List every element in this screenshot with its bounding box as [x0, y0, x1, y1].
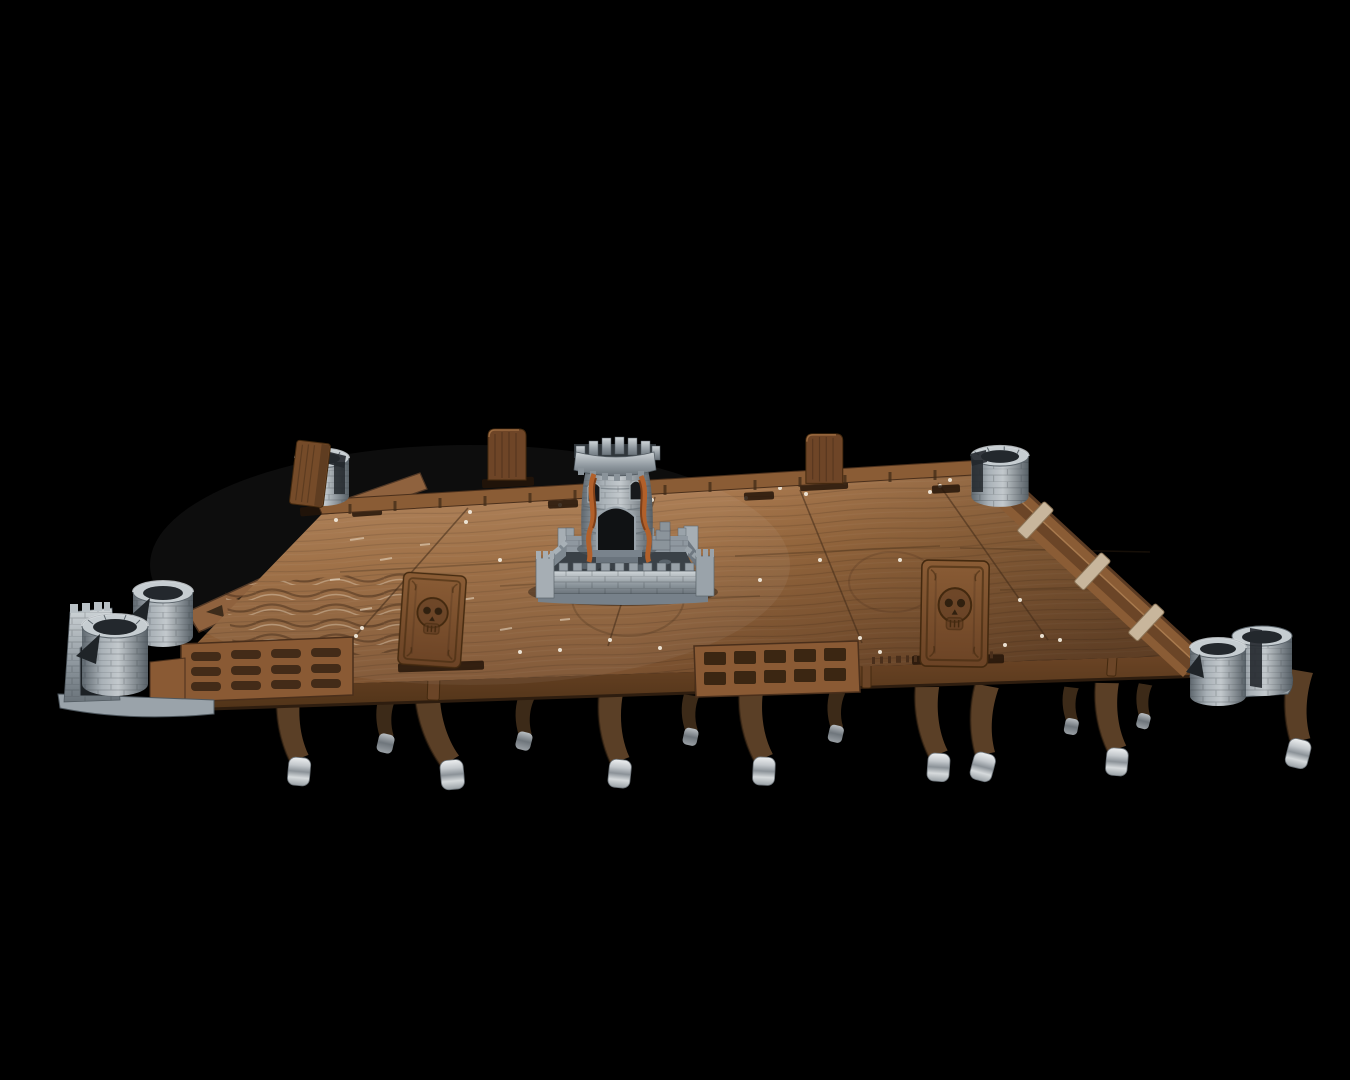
front-tray-center [694, 641, 860, 697]
cluster-ring-front [76, 614, 148, 696]
cup-holder-top-right [970, 446, 1029, 507]
front-tray-left [181, 637, 353, 702]
scene [0, 0, 1350, 1080]
leaning-panel [289, 440, 331, 508]
front-rail-end [150, 658, 185, 704]
skull-panel-right [920, 560, 989, 667]
skull-panel-left [398, 572, 467, 668]
product-photo: Modular wooden tabletop gaming table on … [0, 0, 1350, 1080]
br-ring-front [1186, 638, 1246, 706]
